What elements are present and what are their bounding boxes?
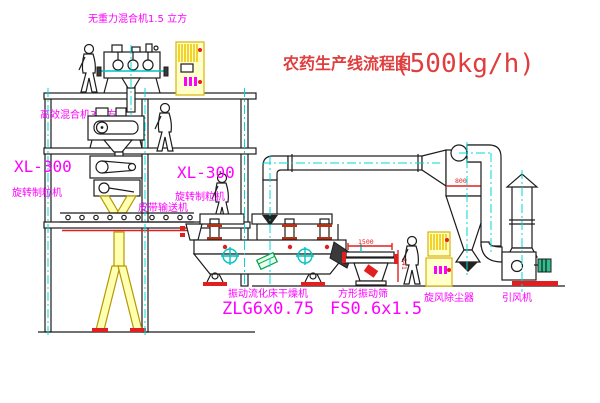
fan-motor <box>538 259 551 272</box>
dryer-model-label: ZLG6x0.75 <box>222 299 314 319</box>
sieve-length-dimension: 1500 <box>358 238 374 246</box>
granulator2-name-label: 旋转制粒机 <box>175 190 225 203</box>
vibrating-sieve <box>342 244 398 285</box>
title-text: 农药生产线流程图 <box>282 54 411 73</box>
induced-draft-fan <box>502 252 558 286</box>
indicator-dot <box>447 268 451 272</box>
granulator1-name-label: 旋转制粒机 <box>12 186 62 199</box>
diagram-canvas: 高效混合机3立方 <box>0 0 600 403</box>
control-cabinet-top <box>176 42 204 95</box>
cyclone-label: 旋风除尘器 <box>424 291 474 304</box>
sieve-model-label: FS0.6x1.5 <box>330 299 422 319</box>
fan-label: 引风机 <box>502 291 532 304</box>
granulator1-model-label: XL-300 <box>14 157 72 176</box>
control-cabinet-right <box>426 232 452 286</box>
worker-figure-floor2 <box>155 104 173 152</box>
top-mixer <box>97 44 168 112</box>
granulator2-model-label: XL-300 <box>177 163 235 182</box>
indicator-dot <box>198 80 202 84</box>
ground-discharge-chute <box>92 232 146 332</box>
indicator-dot <box>198 48 202 52</box>
title-capacity: (500kg/h) <box>394 49 535 79</box>
belt-conveyor-label: 皮带输送机 <box>138 201 188 214</box>
granulator <box>90 156 142 213</box>
sieve-height-dimension: 541 <box>400 258 408 270</box>
cad-flow-diagram: 高效混合机3立方 <box>0 0 600 403</box>
top-mixer-label: 无重力混合机1.5 立方 <box>88 12 187 25</box>
diagram-title: 农药生产线流程图 (500kg/h) <box>282 49 535 79</box>
indicator-dot <box>445 238 449 242</box>
worker-figure-roof <box>79 45 97 93</box>
cyclone-diameter-dimension: 800 <box>455 177 467 185</box>
